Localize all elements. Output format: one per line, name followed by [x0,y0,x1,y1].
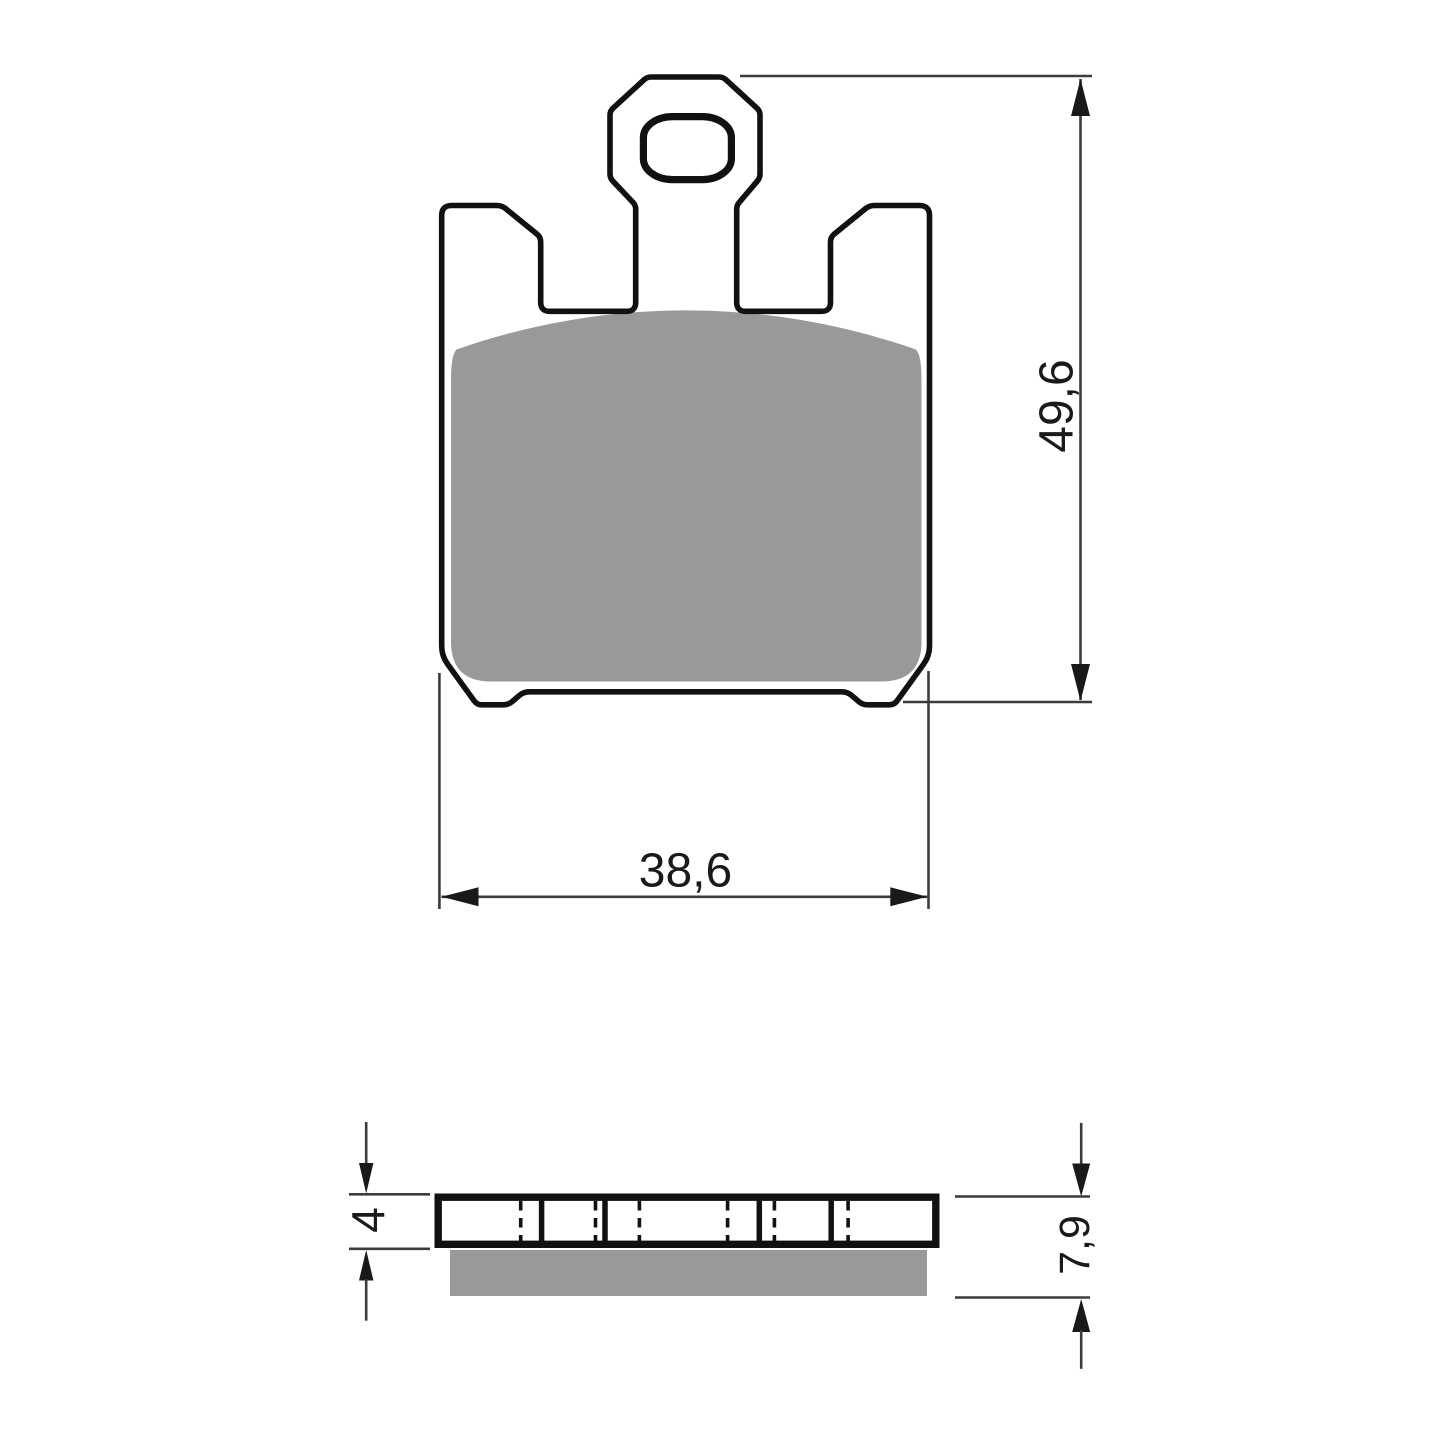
svg-text:4: 4 [342,1207,394,1233]
svg-text:7,9: 7,9 [1051,1215,1099,1275]
svg-text:49,6: 49,6 [1031,359,1084,452]
svg-text:38,6: 38,6 [639,845,732,898]
